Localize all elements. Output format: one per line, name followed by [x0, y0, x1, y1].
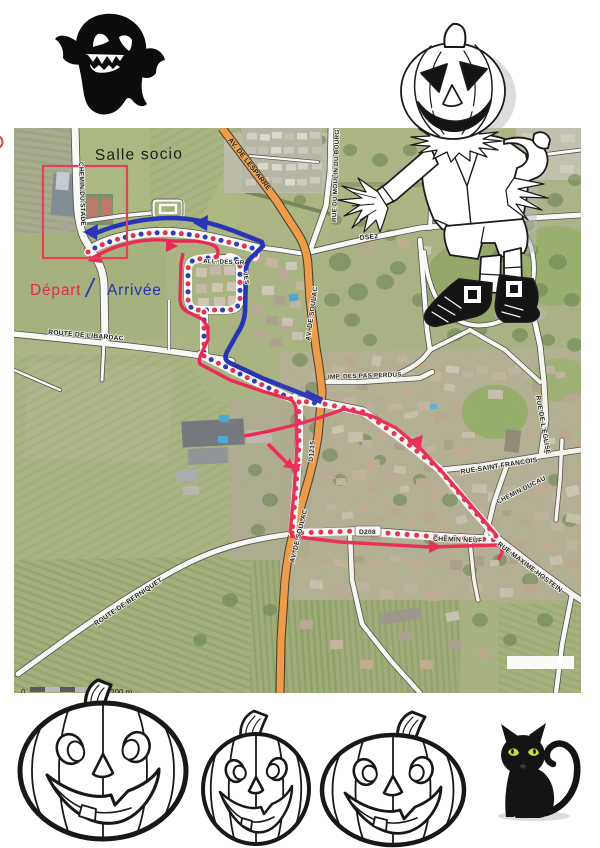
svg-text:0: 0 [21, 688, 26, 697]
svg-text:Départ: Départ [30, 282, 81, 299]
svg-text:Salle socio: Salle socio [95, 145, 183, 164]
svg-text:Arrivée: Arrivée [107, 282, 162, 299]
svg-text:200 m: 200 m [110, 688, 133, 697]
